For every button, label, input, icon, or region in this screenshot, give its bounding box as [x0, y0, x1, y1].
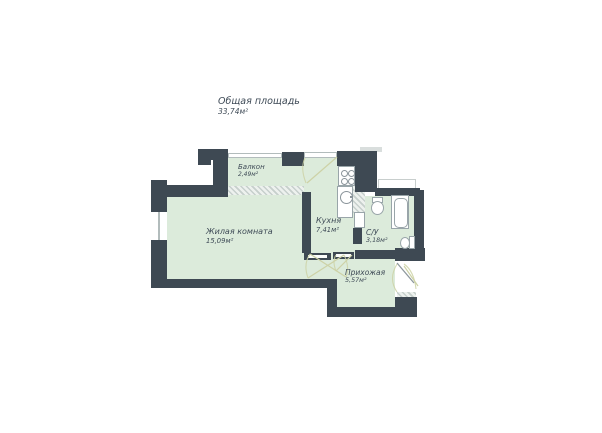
room-area: 15,09м²: [206, 237, 273, 245]
balcony-door-opening: [304, 152, 337, 158]
room-name: Балкон: [238, 163, 265, 171]
total-area-label: Общая площадь: [218, 96, 300, 107]
bathtub: [391, 195, 409, 229]
toilet-bowl: [400, 237, 410, 249]
room-label-hallway: Прихожая 5,57м²: [345, 268, 385, 285]
room-label-bathroom: С/У 3,18м²: [366, 228, 388, 245]
wall-segment: [163, 185, 228, 197]
balcony-window-band: [226, 186, 304, 195]
wall-segment: [355, 164, 377, 192]
entrance-door-leaf-outer: [404, 266, 418, 286]
kitchen-counter: [337, 186, 353, 218]
doorway-inset: [308, 255, 327, 258]
entrance-door-leaf: [397, 263, 414, 283]
entrance-door-arc-outer: [404, 264, 416, 289]
room-area: 5,57м²: [345, 277, 385, 285]
room-label-living: Жилая комната 15,09м²: [206, 227, 273, 245]
kitchen-sink: [340, 191, 353, 204]
doorway-inset: [336, 254, 351, 257]
room-area: 2,49м²: [238, 171, 265, 178]
tap-icon: [350, 196, 353, 198]
bathroom-sink-bowl: [371, 201, 384, 215]
wall-segment: [302, 192, 311, 253]
room-label-balcony: Балкон 2,49м²: [238, 163, 265, 179]
wall-segment: [198, 149, 211, 165]
wall-segment: [414, 190, 424, 253]
stove: [338, 166, 355, 186]
room-name: Жилая комната: [206, 227, 273, 237]
water-heater: [354, 212, 365, 228]
burner-icon: [348, 170, 355, 177]
wall-segment: [282, 152, 304, 166]
floor-plan: Общая площадь 33,74м² ТМ: [0, 0, 602, 433]
balcony-glazing: [228, 153, 282, 158]
wall-segment: [395, 297, 417, 317]
living-room-window: [153, 210, 167, 241]
total-area-value: 33,74м²: [218, 107, 300, 116]
burner-icon: [341, 178, 348, 185]
room-area: 7,41м²: [316, 226, 341, 234]
wall-segment: [353, 228, 362, 244]
burner-icon: [341, 170, 348, 177]
room-area: 3,18м²: [366, 237, 388, 245]
burner-icon: [348, 178, 355, 185]
wall-segment: [395, 248, 425, 261]
total-area-caption: Общая площадь 33,74м²: [218, 96, 300, 116]
bathtub-inner: [394, 198, 408, 228]
wall-segment: [151, 180, 167, 212]
room-label-kitchen: Кухня 7,41м²: [316, 216, 341, 234]
window-line: [158, 210, 160, 241]
room-name: Кухня: [316, 216, 341, 226]
wall-segment: [158, 279, 327, 288]
